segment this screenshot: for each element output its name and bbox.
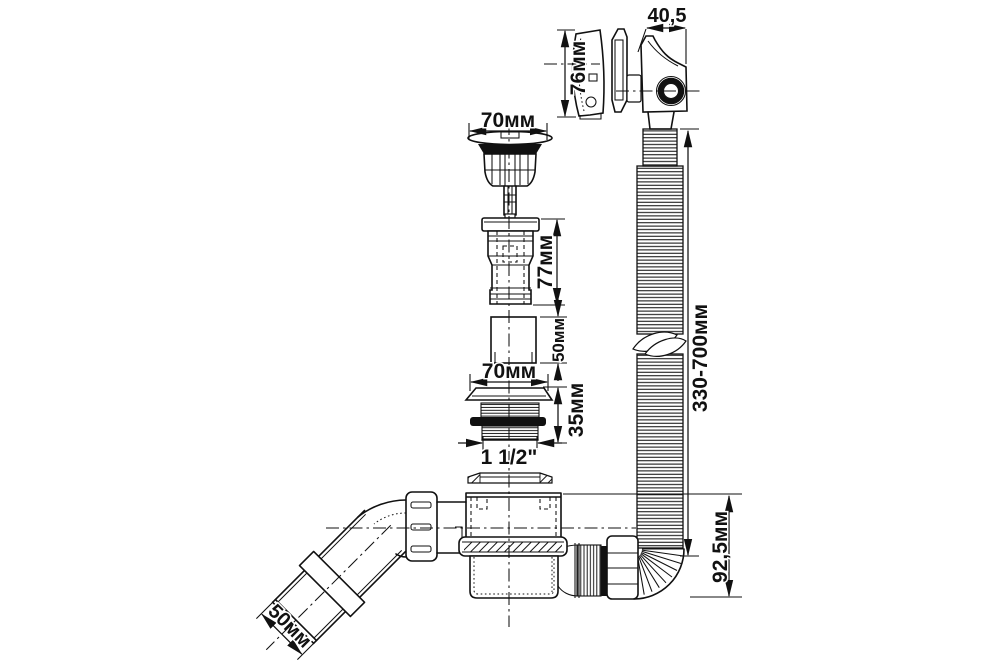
dim-70-top-label: 70мм bbox=[481, 109, 535, 132]
dim-92-5-label: 92,5мм bbox=[709, 511, 732, 583]
dim-77: 77мм bbox=[533, 219, 565, 305]
dim-hose-length-label: 330-700мм bbox=[689, 304, 712, 412]
bayonet-slots bbox=[477, 497, 550, 509]
cup-hidden-walls bbox=[471, 497, 556, 538]
cup-bowl bbox=[470, 556, 558, 598]
outlet-pipe-angled: 50мм bbox=[241, 500, 416, 670]
friction-ring bbox=[468, 473, 552, 483]
dim-thread-label: 1 1/2" bbox=[481, 446, 538, 469]
adapter-cylinder bbox=[491, 317, 536, 363]
plug-stem bbox=[504, 186, 516, 218]
overflow-gasket bbox=[612, 29, 627, 112]
dim-76-label: 76мм bbox=[567, 41, 590, 95]
cup-gasket-band bbox=[459, 537, 567, 556]
dim-70-bottom-label: 70мм bbox=[482, 360, 536, 383]
siphon-outlet bbox=[558, 536, 638, 599]
plug-seat-body bbox=[482, 218, 539, 304]
flange-gasket bbox=[470, 417, 546, 426]
overflow-elbow bbox=[627, 36, 687, 129]
diagram-canvas: 50мм bbox=[0, 0, 1000, 670]
dim-35: 35мм bbox=[543, 383, 588, 443]
dim-77-label: 77мм bbox=[534, 235, 557, 289]
dim-35-label: 35мм bbox=[565, 383, 588, 437]
dim-40-5-label: 40,5 bbox=[648, 5, 687, 27]
dim-50-mid: 50мм bbox=[540, 299, 568, 381]
dim-thread: 1 1/2" bbox=[458, 436, 562, 469]
dim-50-mid-label: 50мм bbox=[549, 318, 568, 362]
drain-plug bbox=[468, 132, 552, 219]
hose-break-symbol bbox=[633, 332, 686, 356]
hose-bend bbox=[634, 549, 684, 599]
corrugated-hose bbox=[633, 129, 686, 599]
siphon-cup bbox=[459, 493, 567, 598]
inlet-nut bbox=[406, 492, 437, 561]
outlet-nut bbox=[607, 536, 638, 599]
plug-gasket bbox=[478, 144, 542, 154]
technical-diagram: 50мм bbox=[0, 0, 1000, 670]
